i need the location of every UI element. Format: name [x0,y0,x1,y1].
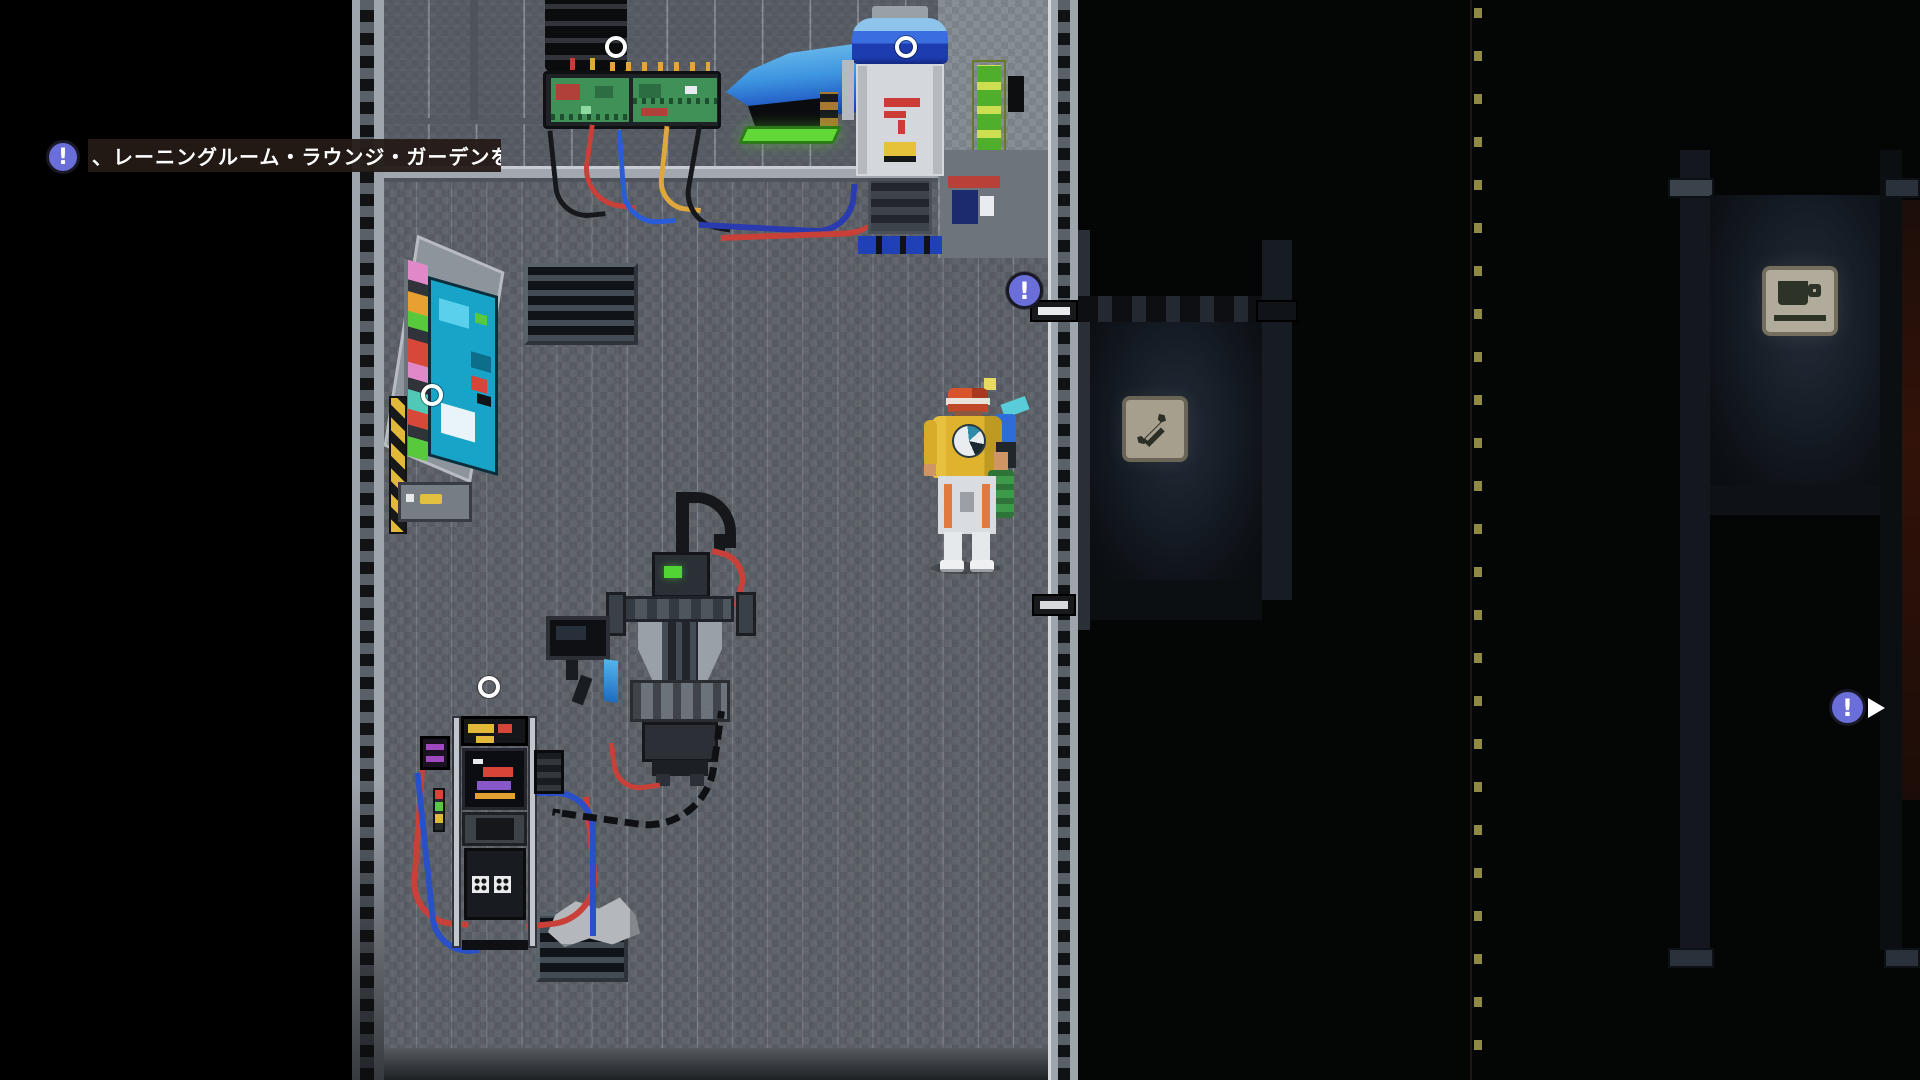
character-globe-emblem [952,424,986,458]
circuit-board-left [551,78,629,122]
console-screen [428,276,498,476]
robot-side-tube [842,60,854,120]
under-box-white-dot [406,494,414,502]
jet-glow-strip [738,126,842,144]
character-left-leg [944,532,962,562]
jet-connector-pins [820,92,838,126]
wall-pipe [382,118,542,124]
robot-rail-right [933,66,942,174]
wrench-alcove-frame-left [1078,230,1090,630]
tower-pin-yellow [590,58,595,70]
monitor-hinge [566,660,578,680]
character-antenna-tip [984,378,996,390]
arm-green-eye [664,566,682,578]
coffee-alcove-frame-right [1880,150,1902,950]
room-left-column-shade [352,780,384,1080]
room-alert-glyph: ! [1019,277,1030,305]
arcade-dice-right [494,876,511,893]
character-left-hand [924,464,936,476]
wrench-alcove-frame-right [1262,240,1292,600]
arm-shoulder-bar [622,596,734,622]
bracket-top-right [1884,178,1920,198]
wall-conduit [470,0,478,120]
robot-red-bar-1 [884,98,920,107]
coffee-cup-icon [1778,281,1822,311]
coffee-alcove [1710,195,1902,485]
character-right-hand [994,452,1008,470]
under-box-yellow-button [420,494,442,504]
divider-handle-top-bar [1038,307,1070,315]
arcade-side-box [534,750,564,794]
robot-base [858,236,942,254]
character-left-shoe [940,560,964,572]
wrench-icon [1133,407,1177,451]
arcade-dice-left [472,876,489,893]
tooltip-alert-badge[interactable]: ! [46,140,80,174]
backdrop-blue-mark [952,190,978,224]
robot-cavity [868,178,932,234]
tooltip-alert-glyph: ! [58,145,68,170]
character-left-arm [924,420,937,468]
monitor-glint [556,626,586,640]
tooltip-text: 、レーニングルーム・ラウンジ・ガーデンを扌 [92,141,501,170]
arcade-indicator-lights [433,788,445,832]
arm-overhead-post [676,496,689,558]
character-pants [938,476,996,534]
arcade-feet [462,940,528,950]
robot-red-bar-3 [898,120,905,134]
hotspot-circle-tower[interactable] [605,36,627,58]
divider-handle-bottom-bar [1040,601,1068,609]
backdrop-red-mark [948,176,1000,188]
wrench-alcove-beam [1078,296,1274,322]
corridor-dashed-line [1474,8,1482,1080]
arcade-post-left [452,716,461,948]
wrench-sign [1122,396,1188,462]
corridor-line-shadow [1470,0,1472,1080]
hotspot-circle-arcade[interactable] [478,676,500,698]
backdrop-white-mark [980,196,994,216]
coffee-sign [1762,266,1838,336]
room-alert-badge[interactable]: ! [1006,272,1043,309]
game-viewport: ! 、レーニングルーム・ラウンジ・ガーデンを扌 ! ! [0,0,1920,1080]
arcade-console-recess [476,818,514,840]
exit-alert-glyph: ! [1842,694,1853,722]
arcade-purple-slots [426,742,444,762]
bracket-bottom-right [1884,948,1920,968]
arcade-screen [462,748,527,810]
wrench-alcove-floor [1090,580,1262,620]
coffee-alcove-frame-left [1680,150,1710,950]
circuit-board-right [633,78,717,122]
tower-pin-red [570,58,575,70]
exit-alert-badge[interactable]: ! [1829,689,1866,726]
character-right-shoe [970,560,994,572]
room-floor-edge [382,1048,1048,1080]
arm-torso-core [662,622,698,682]
wrench-alcove-handle [1256,300,1298,322]
bracket-top-left [1668,178,1714,198]
robot-red-bar-2 [884,111,906,118]
console-button-strip [404,259,428,462]
battery-panel [972,60,1006,158]
corridor-red-strip [1902,200,1920,800]
tooltip-box: 、レーニングルーム・ラウンジ・ガーデンを扌 [88,139,501,172]
bench-pins [610,62,710,71]
bracket-bottom-left [1668,948,1714,968]
backdrop-slot [1008,76,1024,112]
room-right-column-rivets [1058,0,1070,1080]
robot-clamp [884,142,916,162]
coffee-sign-bar [1774,315,1826,321]
vent-grate-top [524,263,638,345]
coffee-alcove-floor [1710,485,1902,515]
robot-rail-left [858,66,867,174]
arcade-marquee [461,716,528,746]
character-right-leg [972,532,990,562]
hotspot-circle-robot[interactable] [895,36,917,58]
hotspot-circle-console[interactable] [421,384,443,406]
arm-stub-right [736,592,756,636]
